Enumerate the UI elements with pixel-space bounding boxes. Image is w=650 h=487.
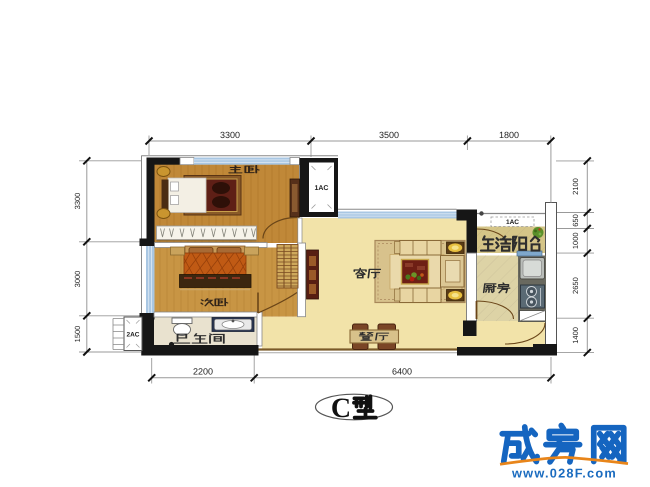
svg-text:2AC: 2AC bbox=[126, 332, 139, 339]
svg-text:6400: 6400 bbox=[392, 367, 412, 377]
svg-text:1400: 1400 bbox=[571, 327, 580, 344]
svg-text:2200: 2200 bbox=[193, 367, 213, 377]
svg-text:3300: 3300 bbox=[73, 193, 82, 210]
svg-text:www.028F.com: www.028F.com bbox=[511, 466, 617, 481]
svg-text:2100: 2100 bbox=[571, 178, 580, 195]
svg-text:1AC: 1AC bbox=[506, 219, 519, 226]
svg-text:650: 650 bbox=[571, 214, 580, 227]
svg-text:C: C bbox=[331, 393, 351, 424]
svg-text:3300: 3300 bbox=[220, 130, 240, 140]
svg-text:1800: 1800 bbox=[499, 130, 519, 140]
svg-text:1AC: 1AC bbox=[314, 185, 328, 192]
svg-text:1000: 1000 bbox=[571, 232, 580, 249]
svg-text:1500: 1500 bbox=[73, 326, 82, 343]
svg-text:3000: 3000 bbox=[73, 271, 82, 288]
svg-text:3500: 3500 bbox=[379, 130, 399, 140]
svg-text:2650: 2650 bbox=[571, 277, 580, 294]
